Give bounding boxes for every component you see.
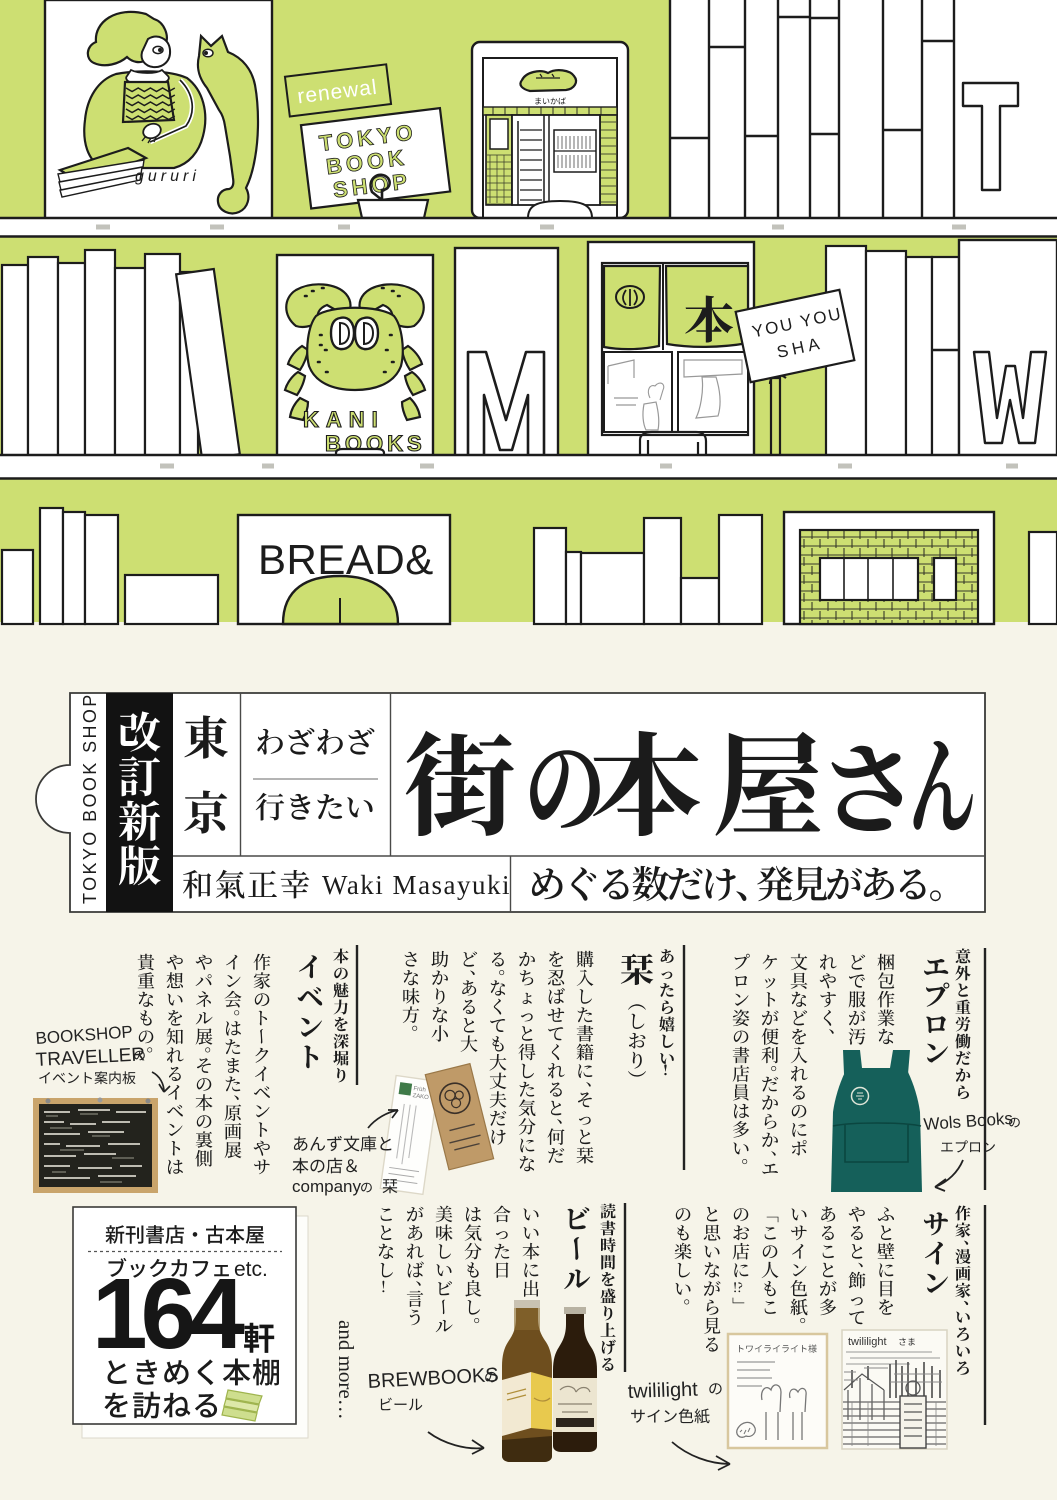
svg-text:Waki Masayuki: Waki Masayuki xyxy=(322,870,511,900)
svg-text:etc.: etc. xyxy=(234,1258,268,1281)
svg-text:twililight: twililight xyxy=(627,1379,698,1403)
svg-text:and more…: and more… xyxy=(334,1320,358,1420)
svg-text:twililight: twililight xyxy=(848,1336,887,1348)
svg-text:company: company xyxy=(292,1177,361,1196)
svg-text:gururi: gururi xyxy=(135,168,200,185)
svg-text:TOKYO BOOK SHOP: TOKYO BOOK SHOP xyxy=(80,692,100,904)
svg-text:KANI: KANI xyxy=(303,407,385,432)
svg-text:164: 164 xyxy=(92,1258,245,1370)
